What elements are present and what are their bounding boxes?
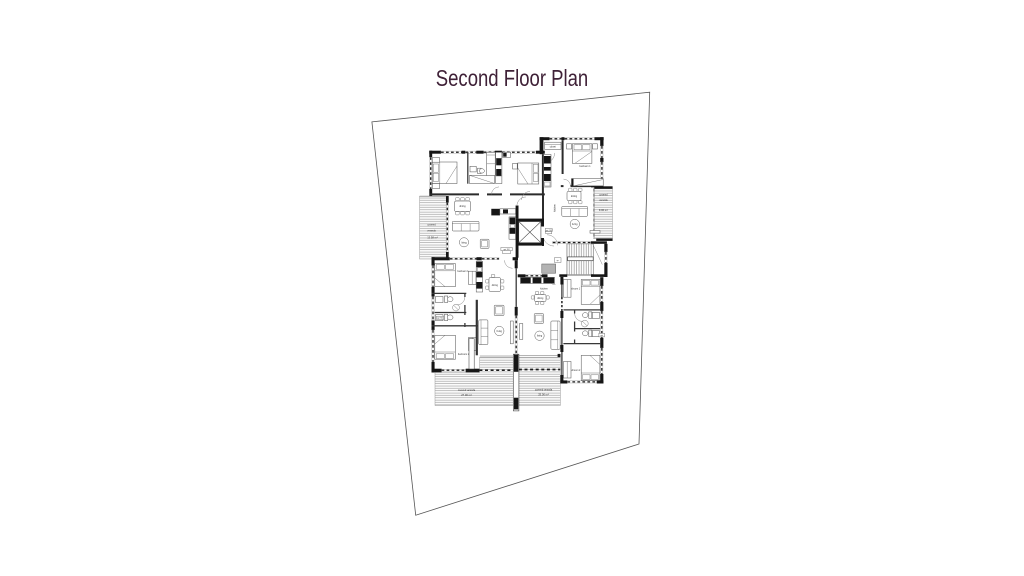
svg-text:apt 701: apt 701 xyxy=(437,317,443,320)
svg-text:veranda: veranda xyxy=(599,199,608,202)
svg-text:covered veranda: covered veranda xyxy=(458,389,476,392)
svg-text:living: living xyxy=(497,331,503,333)
svg-text:covered veranda: covered veranda xyxy=(535,389,553,392)
svg-text:bedroom 1: bedroom 1 xyxy=(579,165,591,168)
svg-text:veranda: veranda xyxy=(427,230,436,233)
svg-text:dining: dining xyxy=(537,298,544,300)
svg-text:dining: dining xyxy=(459,206,466,208)
svg-text:kitchen: kitchen xyxy=(540,288,548,291)
svg-text:covered: covered xyxy=(427,224,436,227)
svg-text:Second Floor Plan: Second Floor Plan xyxy=(436,65,589,91)
svg-text:up: up xyxy=(557,260,559,262)
svg-text:dining: dining xyxy=(571,196,578,198)
svg-text:dining: dining xyxy=(492,285,499,287)
svg-text:apt 702: apt 702 xyxy=(504,248,510,251)
svg-text:covered: covered xyxy=(599,194,608,197)
svg-text:apt 703: apt 703 xyxy=(546,229,552,232)
svg-text:living: living xyxy=(461,242,467,244)
svg-text:bedroom 2: bedroom 2 xyxy=(458,353,470,356)
svg-text:9.00 m²: 9.00 m² xyxy=(599,208,608,212)
svg-text:kitchen: kitchen xyxy=(554,204,557,212)
svg-text:13.58 m²: 13.58 m² xyxy=(427,235,438,239)
svg-text:25.00 m²: 25.00 m² xyxy=(538,393,549,397)
svg-text:closet: closet xyxy=(550,146,556,149)
svg-text:living: living xyxy=(537,336,543,338)
svg-text:27.00 m²: 27.00 m² xyxy=(461,393,472,397)
svg-text:bedroom 1: bedroom 1 xyxy=(457,270,469,273)
svg-text:living: living xyxy=(572,224,578,226)
